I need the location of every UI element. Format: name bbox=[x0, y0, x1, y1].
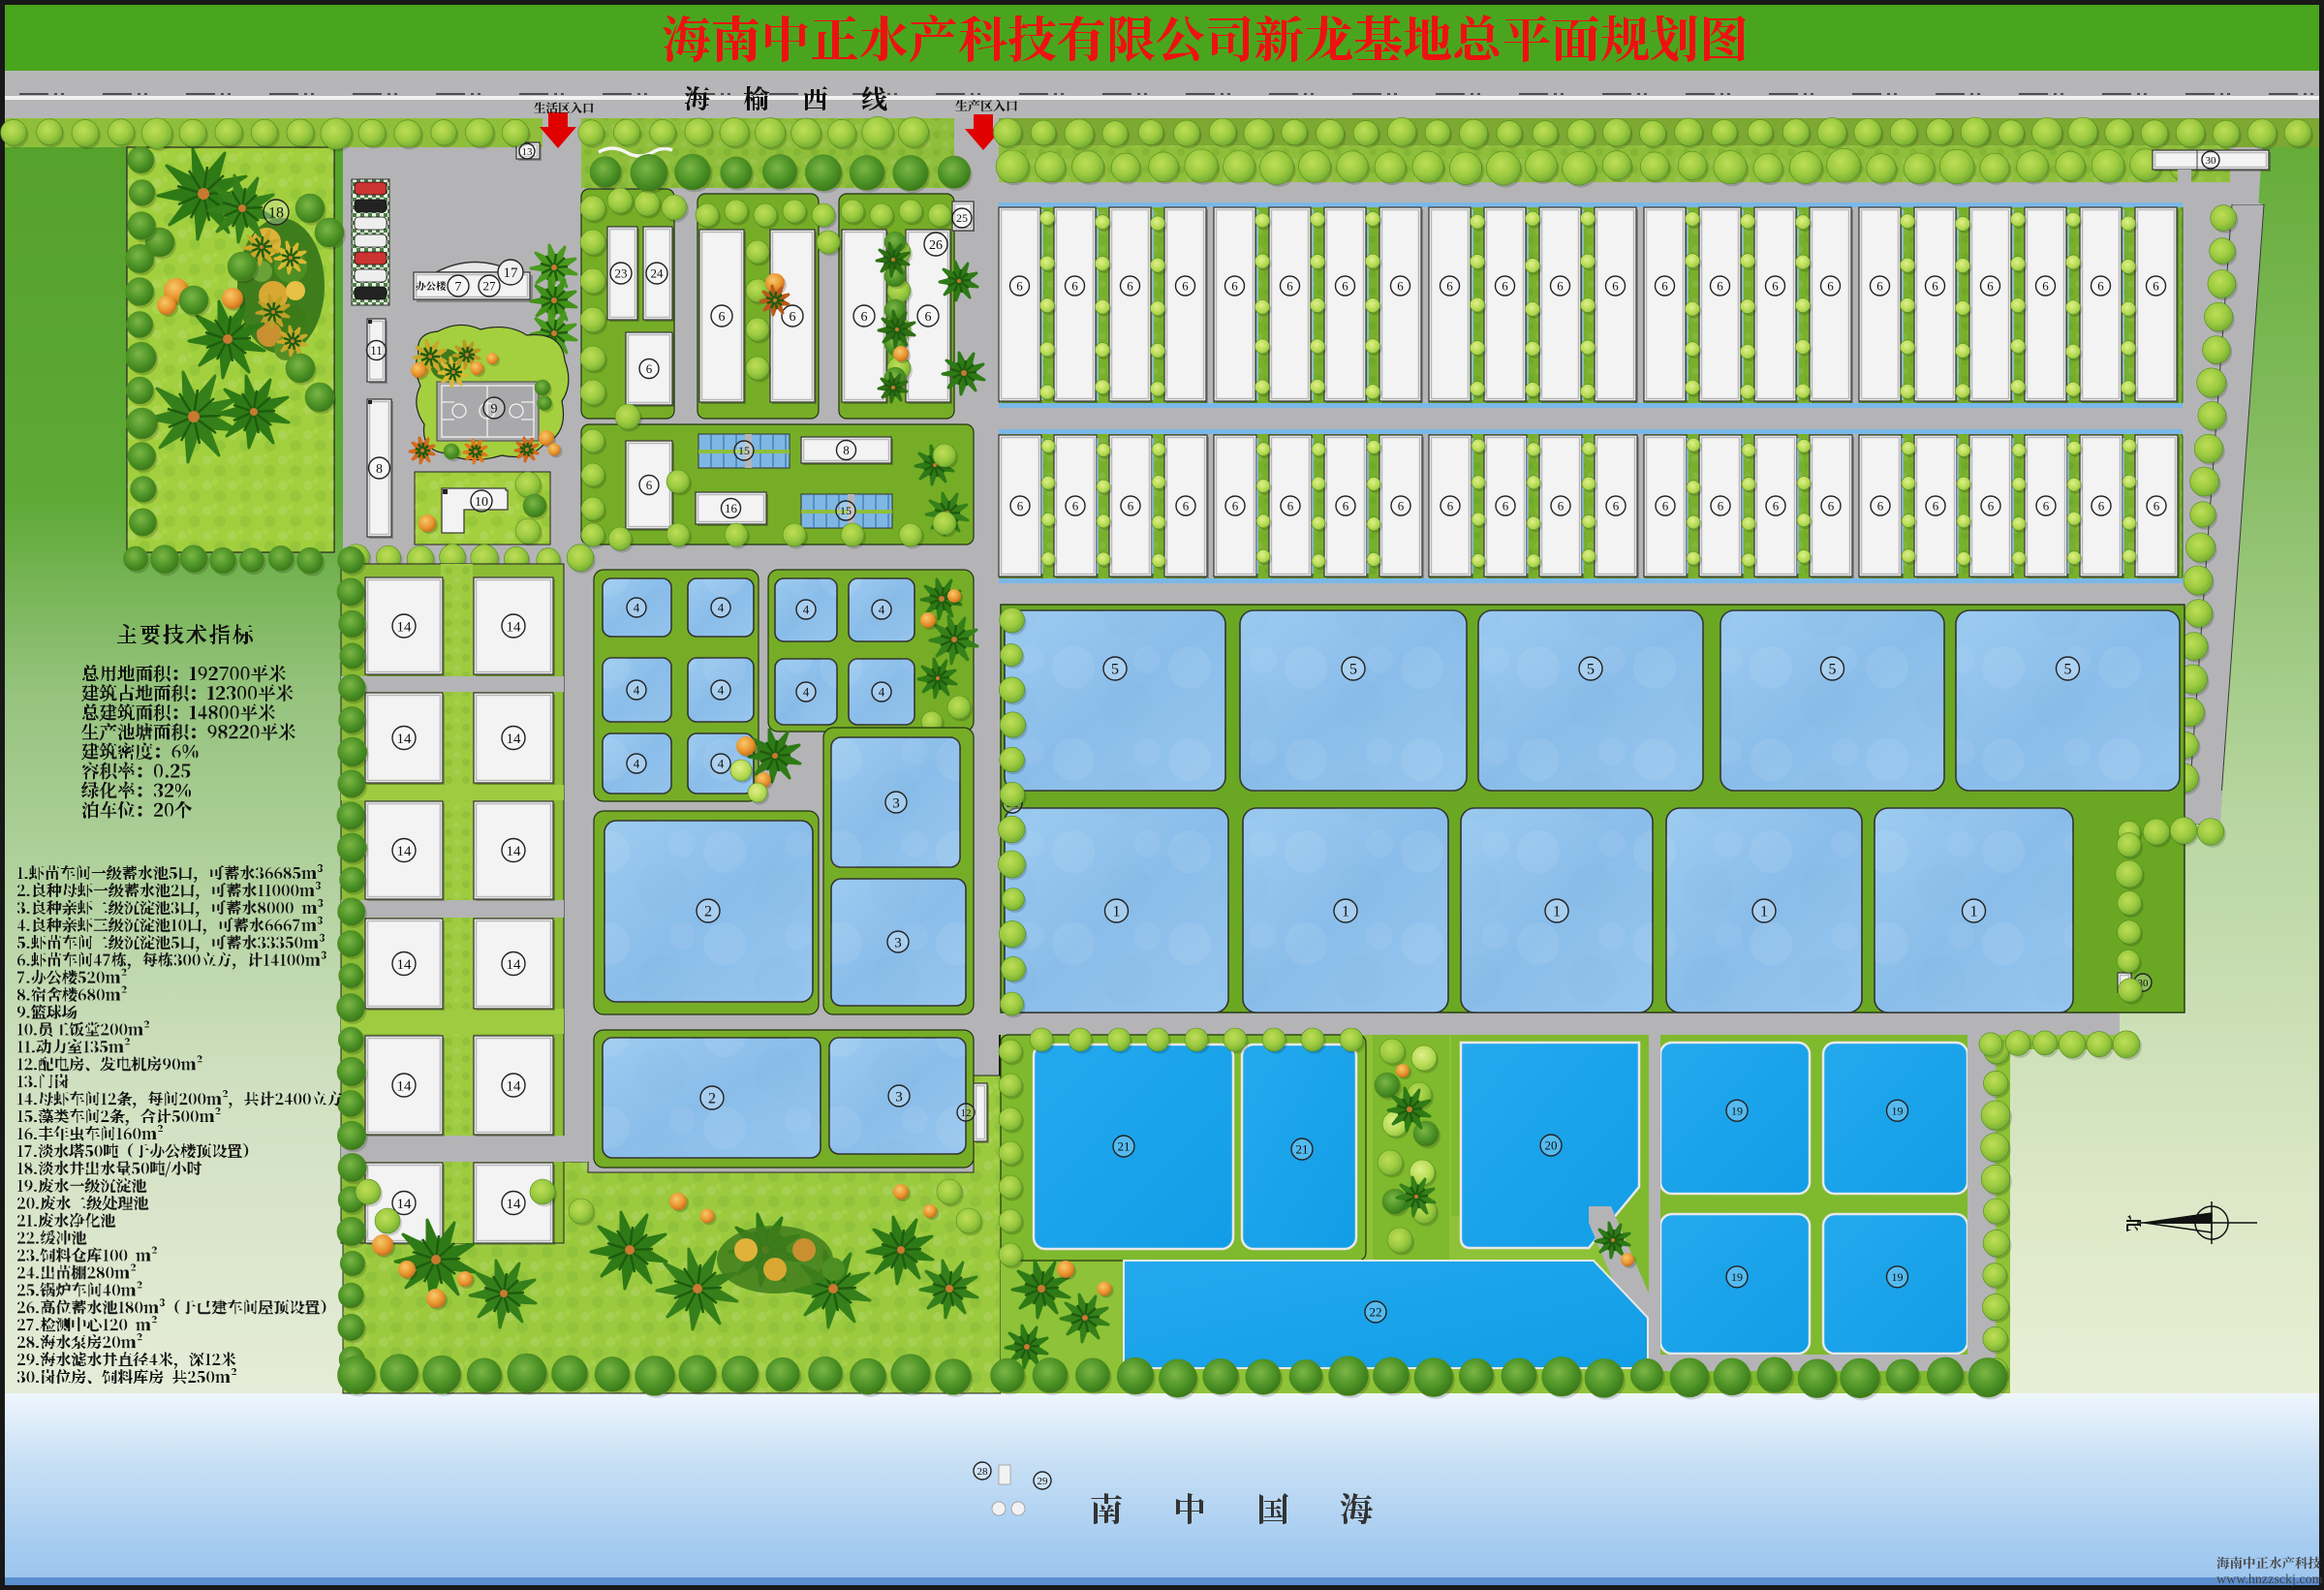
svg-text:6: 6 bbox=[1612, 279, 1619, 294]
svg-text:23: 23 bbox=[615, 266, 628, 281]
svg-text:14: 14 bbox=[397, 844, 413, 859]
svg-text:6: 6 bbox=[1397, 279, 1404, 294]
svg-text:6: 6 bbox=[1988, 499, 1995, 514]
svg-text:15: 15 bbox=[840, 504, 852, 517]
svg-text:20: 20 bbox=[1545, 1138, 1558, 1153]
svg-text:2: 2 bbox=[708, 1091, 716, 1107]
svg-text:4: 4 bbox=[634, 757, 640, 771]
svg-text:6: 6 bbox=[1232, 499, 1239, 514]
svg-text:6: 6 bbox=[1017, 499, 1024, 514]
svg-text:6: 6 bbox=[2043, 499, 2050, 514]
svg-text:6: 6 bbox=[1398, 499, 1405, 514]
svg-text:14: 14 bbox=[397, 619, 413, 635]
svg-text:6: 6 bbox=[1717, 279, 1723, 294]
svg-text:4: 4 bbox=[718, 601, 725, 615]
svg-text:6: 6 bbox=[1286, 279, 1293, 294]
svg-text:1: 1 bbox=[1760, 904, 1768, 920]
svg-text:4: 4 bbox=[879, 685, 885, 700]
svg-text:5: 5 bbox=[1349, 662, 1357, 678]
svg-text:14: 14 bbox=[507, 957, 522, 973]
svg-text:3: 3 bbox=[895, 1089, 903, 1105]
svg-text:17: 17 bbox=[504, 265, 519, 281]
svg-text:14: 14 bbox=[397, 1078, 413, 1094]
svg-text:1: 1 bbox=[1113, 904, 1121, 920]
svg-text:6: 6 bbox=[1343, 499, 1349, 514]
svg-text:6: 6 bbox=[1827, 279, 1834, 294]
svg-text:6: 6 bbox=[2153, 279, 2159, 294]
svg-text:15: 15 bbox=[738, 444, 750, 457]
svg-text:14: 14 bbox=[507, 844, 522, 859]
svg-text:6: 6 bbox=[1772, 279, 1779, 294]
svg-text:6: 6 bbox=[646, 361, 653, 376]
svg-text:6: 6 bbox=[1718, 499, 1724, 514]
svg-text:27: 27 bbox=[483, 279, 497, 294]
svg-text:4: 4 bbox=[803, 685, 810, 700]
svg-text:7: 7 bbox=[455, 280, 462, 295]
svg-text:4: 4 bbox=[634, 683, 640, 698]
svg-text:6: 6 bbox=[1128, 499, 1134, 514]
svg-text:29: 29 bbox=[1038, 1476, 1049, 1487]
svg-text:6: 6 bbox=[1182, 279, 1189, 294]
svg-text:16: 16 bbox=[725, 501, 738, 515]
svg-text:11: 11 bbox=[370, 343, 383, 358]
svg-text:6: 6 bbox=[2042, 279, 2049, 294]
svg-text:30: 30 bbox=[2206, 155, 2217, 167]
svg-text:19: 19 bbox=[1892, 1104, 1904, 1117]
svg-text:6: 6 bbox=[861, 310, 868, 325]
svg-text:6: 6 bbox=[646, 478, 653, 492]
svg-text:19: 19 bbox=[1731, 1270, 1743, 1284]
svg-text:4: 4 bbox=[718, 683, 725, 698]
svg-text:6: 6 bbox=[1773, 499, 1780, 514]
svg-text:6: 6 bbox=[1446, 279, 1453, 294]
svg-text:4: 4 bbox=[803, 603, 810, 617]
svg-text:5: 5 bbox=[2064, 662, 2072, 678]
svg-text:6: 6 bbox=[790, 310, 796, 325]
svg-text:6: 6 bbox=[1447, 499, 1454, 514]
svg-text:28: 28 bbox=[977, 1466, 989, 1478]
svg-text:6: 6 bbox=[1613, 499, 1620, 514]
svg-text:6: 6 bbox=[1987, 279, 1994, 294]
svg-text:6: 6 bbox=[1876, 279, 1883, 294]
svg-text:3: 3 bbox=[892, 795, 900, 811]
svg-text:14: 14 bbox=[397, 732, 413, 747]
svg-text:14: 14 bbox=[507, 1197, 522, 1212]
svg-text:14: 14 bbox=[397, 1197, 413, 1212]
svg-text:19: 19 bbox=[1731, 1104, 1743, 1117]
svg-text:12: 12 bbox=[961, 1107, 972, 1119]
svg-text:10: 10 bbox=[475, 495, 488, 510]
svg-text:6: 6 bbox=[1502, 279, 1508, 294]
svg-text:6: 6 bbox=[1558, 499, 1565, 514]
svg-text:www.hnzzsckj.com: www.hnzzsckj.com bbox=[2216, 1573, 2323, 1587]
svg-text:6: 6 bbox=[1661, 279, 1668, 294]
svg-text:5: 5 bbox=[1829, 662, 1837, 678]
svg-text:6: 6 bbox=[719, 310, 726, 325]
svg-text:1: 1 bbox=[1553, 904, 1561, 920]
svg-text:14: 14 bbox=[507, 732, 522, 747]
svg-text:14: 14 bbox=[507, 619, 522, 635]
svg-text:26: 26 bbox=[929, 238, 943, 253]
svg-text:4: 4 bbox=[634, 601, 640, 615]
svg-text:6: 6 bbox=[1877, 499, 1884, 514]
svg-text:9: 9 bbox=[491, 402, 498, 417]
svg-text:6: 6 bbox=[1342, 279, 1348, 294]
svg-text:6: 6 bbox=[1557, 279, 1564, 294]
svg-text:3: 3 bbox=[894, 935, 902, 951]
svg-text:6: 6 bbox=[1072, 499, 1079, 514]
svg-text:8: 8 bbox=[843, 443, 850, 457]
svg-text:6: 6 bbox=[1933, 499, 1939, 514]
svg-text:5: 5 bbox=[1111, 662, 1119, 678]
svg-text:4: 4 bbox=[718, 757, 725, 771]
svg-text:6: 6 bbox=[925, 310, 932, 325]
svg-text:21: 21 bbox=[1118, 1139, 1131, 1154]
svg-text:24: 24 bbox=[651, 266, 665, 281]
svg-text:21: 21 bbox=[1296, 1142, 1309, 1157]
svg-text:6: 6 bbox=[1016, 279, 1023, 294]
svg-text:6: 6 bbox=[2154, 499, 2160, 514]
svg-text:6: 6 bbox=[1932, 279, 1938, 294]
svg-text:6: 6 bbox=[1828, 499, 1835, 514]
svg-text:1: 1 bbox=[1970, 904, 1978, 920]
svg-text:13: 13 bbox=[522, 146, 534, 158]
svg-text:19: 19 bbox=[1892, 1270, 1904, 1284]
svg-text:4: 4 bbox=[879, 603, 885, 617]
svg-text:6: 6 bbox=[1287, 499, 1294, 514]
svg-text:6: 6 bbox=[1231, 279, 1238, 294]
svg-text:6: 6 bbox=[1183, 499, 1190, 514]
svg-text:5: 5 bbox=[1587, 662, 1595, 678]
svg-text:1: 1 bbox=[1342, 904, 1349, 920]
svg-text:14: 14 bbox=[397, 957, 413, 973]
svg-text:6: 6 bbox=[2098, 499, 2105, 514]
svg-text:18: 18 bbox=[268, 205, 284, 222]
svg-text:22: 22 bbox=[1370, 1305, 1382, 1320]
svg-text:6: 6 bbox=[1127, 279, 1133, 294]
svg-text:8: 8 bbox=[376, 462, 383, 477]
svg-text:6: 6 bbox=[2097, 279, 2104, 294]
svg-text:14: 14 bbox=[507, 1078, 522, 1094]
svg-text:2: 2 bbox=[704, 904, 712, 920]
svg-text:6: 6 bbox=[1503, 499, 1509, 514]
svg-text:6: 6 bbox=[1071, 279, 1078, 294]
svg-text:25: 25 bbox=[956, 211, 968, 225]
svg-text:6: 6 bbox=[1662, 499, 1669, 514]
